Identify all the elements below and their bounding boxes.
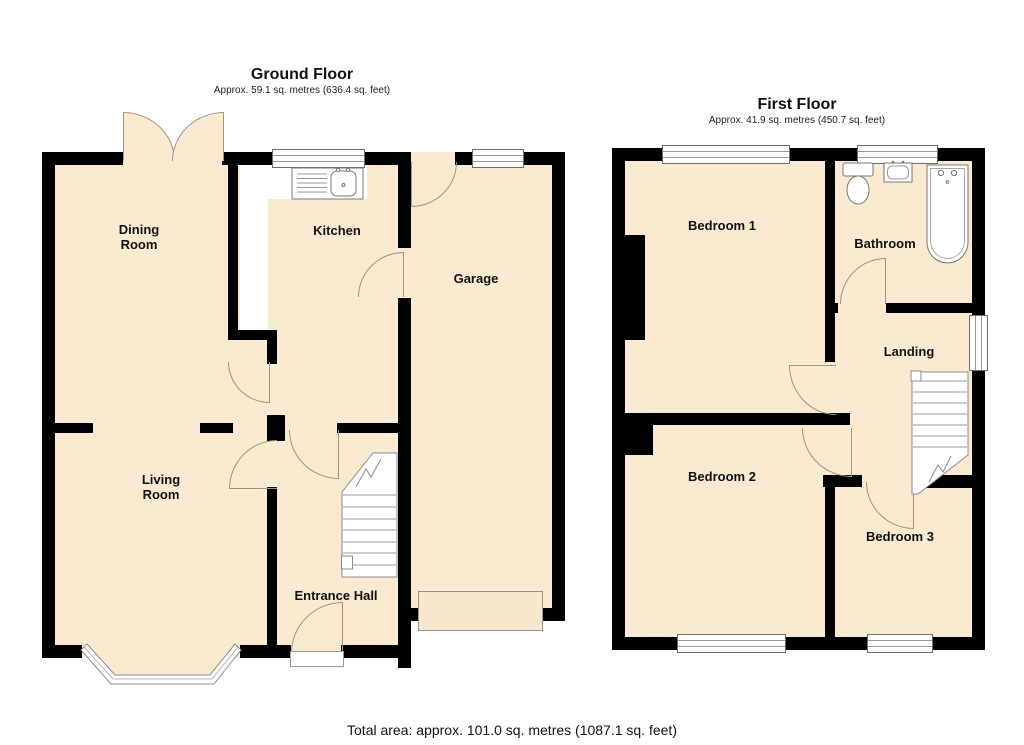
total-area-text: Total area: approx. 101.0 sq. metres (10…	[282, 722, 742, 738]
wall	[267, 415, 285, 441]
room-label-kitchen: Kitchen	[292, 223, 382, 238]
bedroom2-window	[677, 634, 786, 653]
wall	[200, 423, 233, 433]
ground-floor-area: Approx. 59.1 sq. metres (636.4 sq. feet)	[172, 84, 432, 97]
room-label-dining-room: Dining Room	[107, 222, 171, 252]
wall	[267, 340, 277, 364]
wall	[972, 148, 985, 650]
wall	[612, 148, 625, 650]
first-floor-title: First Floor	[667, 96, 927, 114]
bedroom1-window	[662, 145, 790, 164]
ground-floor-title: Ground Floor	[172, 66, 432, 84]
floorplan-canvas: Ground Floor Approx. 59.1 sq. metres (63…	[0, 0, 1024, 745]
wall	[625, 413, 850, 425]
landing-window	[969, 315, 988, 371]
garage-window	[472, 149, 524, 168]
room-label-garage: Garage	[431, 271, 521, 286]
wall	[42, 152, 123, 165]
wall	[240, 645, 291, 658]
wall	[42, 152, 55, 658]
room-label-entrance-hall: Entrance Hall	[294, 588, 378, 603]
chimney-breast	[625, 235, 645, 340]
garage-door-icon	[418, 591, 543, 631]
wall	[42, 645, 82, 658]
chimney-breast	[625, 425, 653, 455]
wall	[228, 165, 238, 337]
wall	[337, 423, 398, 433]
wall	[886, 303, 972, 313]
room-label-bedroom2: Bedroom 2	[677, 469, 767, 484]
kitchen-worktop-strip	[240, 165, 268, 335]
french-doors-icon	[172, 112, 224, 161]
wall	[341, 645, 411, 658]
bedroom3-window	[867, 634, 933, 653]
room-label-bedroom3: Bedroom 3	[855, 529, 945, 544]
bathroom-window	[857, 145, 938, 164]
room-label-landing: Landing	[864, 344, 954, 359]
wall	[825, 303, 838, 313]
wall	[228, 330, 277, 340]
wall	[825, 487, 835, 637]
wall	[825, 313, 835, 362]
kitchen-window	[272, 149, 365, 168]
wall	[398, 152, 411, 248]
wall	[823, 475, 862, 487]
first-floor-area: Approx. 41.9 sq. metres (450.7 sq. feet)	[667, 114, 927, 127]
door-step-icon	[290, 651, 344, 667]
wall	[925, 475, 973, 488]
french-doors-icon	[123, 112, 175, 161]
first-floor-header: First Floor Approx. 41.9 sq. metres (450…	[667, 96, 927, 127]
garage-floor-fill	[411, 165, 552, 608]
room-label-bedroom1: Bedroom 1	[677, 218, 767, 233]
kitchen-counter-zone	[268, 165, 367, 199]
wall	[825, 161, 835, 307]
room-label-living-room: Living Room	[129, 472, 193, 502]
wall	[398, 298, 411, 668]
ground-floor-header: Ground Floor Approx. 59.1 sq. metres (63…	[172, 66, 432, 97]
wall	[267, 487, 277, 645]
bay-window-opening	[82, 645, 240, 658]
wall	[552, 152, 565, 621]
wall	[55, 423, 93, 433]
room-label-bathroom: Bathroom	[840, 236, 930, 251]
